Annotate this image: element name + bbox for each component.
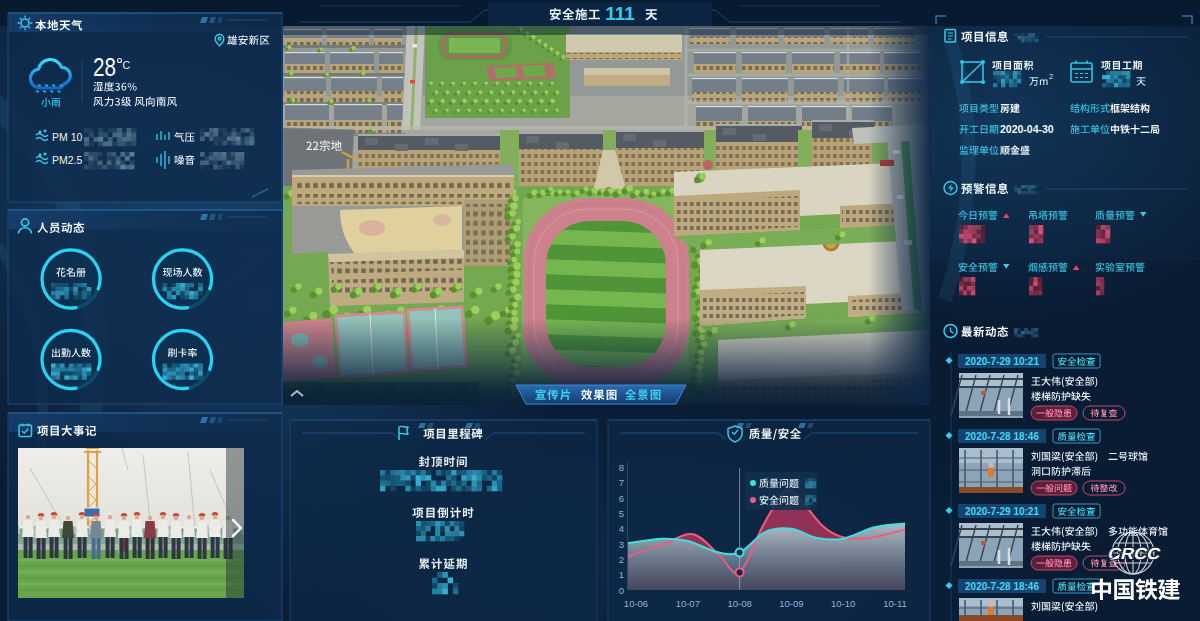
svg-text:C: C [123, 59, 131, 71]
svg-text:3: 3 [619, 539, 624, 550]
svg-text:5: 5 [619, 508, 624, 519]
svg-text:6: 6 [619, 493, 624, 504]
svg-text:2020-7-29 10:21: 2020-7-29 10:21 [965, 356, 1039, 367]
svg-text:2020-7-28 18:46: 2020-7-28 18:46 [965, 431, 1039, 442]
svg-text:10-07: 10-07 [676, 598, 700, 609]
svg-text:8: 8 [619, 462, 624, 473]
svg-text:2: 2 [619, 554, 624, 565]
svg-text:PM 10: PM 10 [52, 131, 83, 143]
svg-text:10-10: 10-10 [831, 598, 855, 609]
svg-text:4: 4 [619, 523, 624, 534]
svg-text:0: 0 [619, 585, 624, 596]
svg-text:7: 7 [619, 477, 624, 488]
svg-text:28: 28 [93, 52, 116, 82]
svg-text:10-08: 10-08 [727, 598, 751, 609]
svg-text:2020-7-29 10:21: 2020-7-29 10:21 [965, 506, 1039, 517]
svg-text:2020-7-28 18:46: 2020-7-28 18:46 [965, 581, 1039, 592]
svg-text:111: 111 [605, 3, 635, 24]
svg-text:10-11: 10-11 [883, 598, 907, 609]
svg-text:1: 1 [619, 569, 624, 580]
svg-text:10-06: 10-06 [624, 598, 648, 609]
svg-text:2020-04-30: 2020-04-30 [1000, 123, 1054, 135]
svg-text:2: 2 [1049, 72, 1053, 81]
svg-text:PM2.5: PM2.5 [52, 154, 83, 166]
svg-text:10-09: 10-09 [779, 598, 803, 609]
